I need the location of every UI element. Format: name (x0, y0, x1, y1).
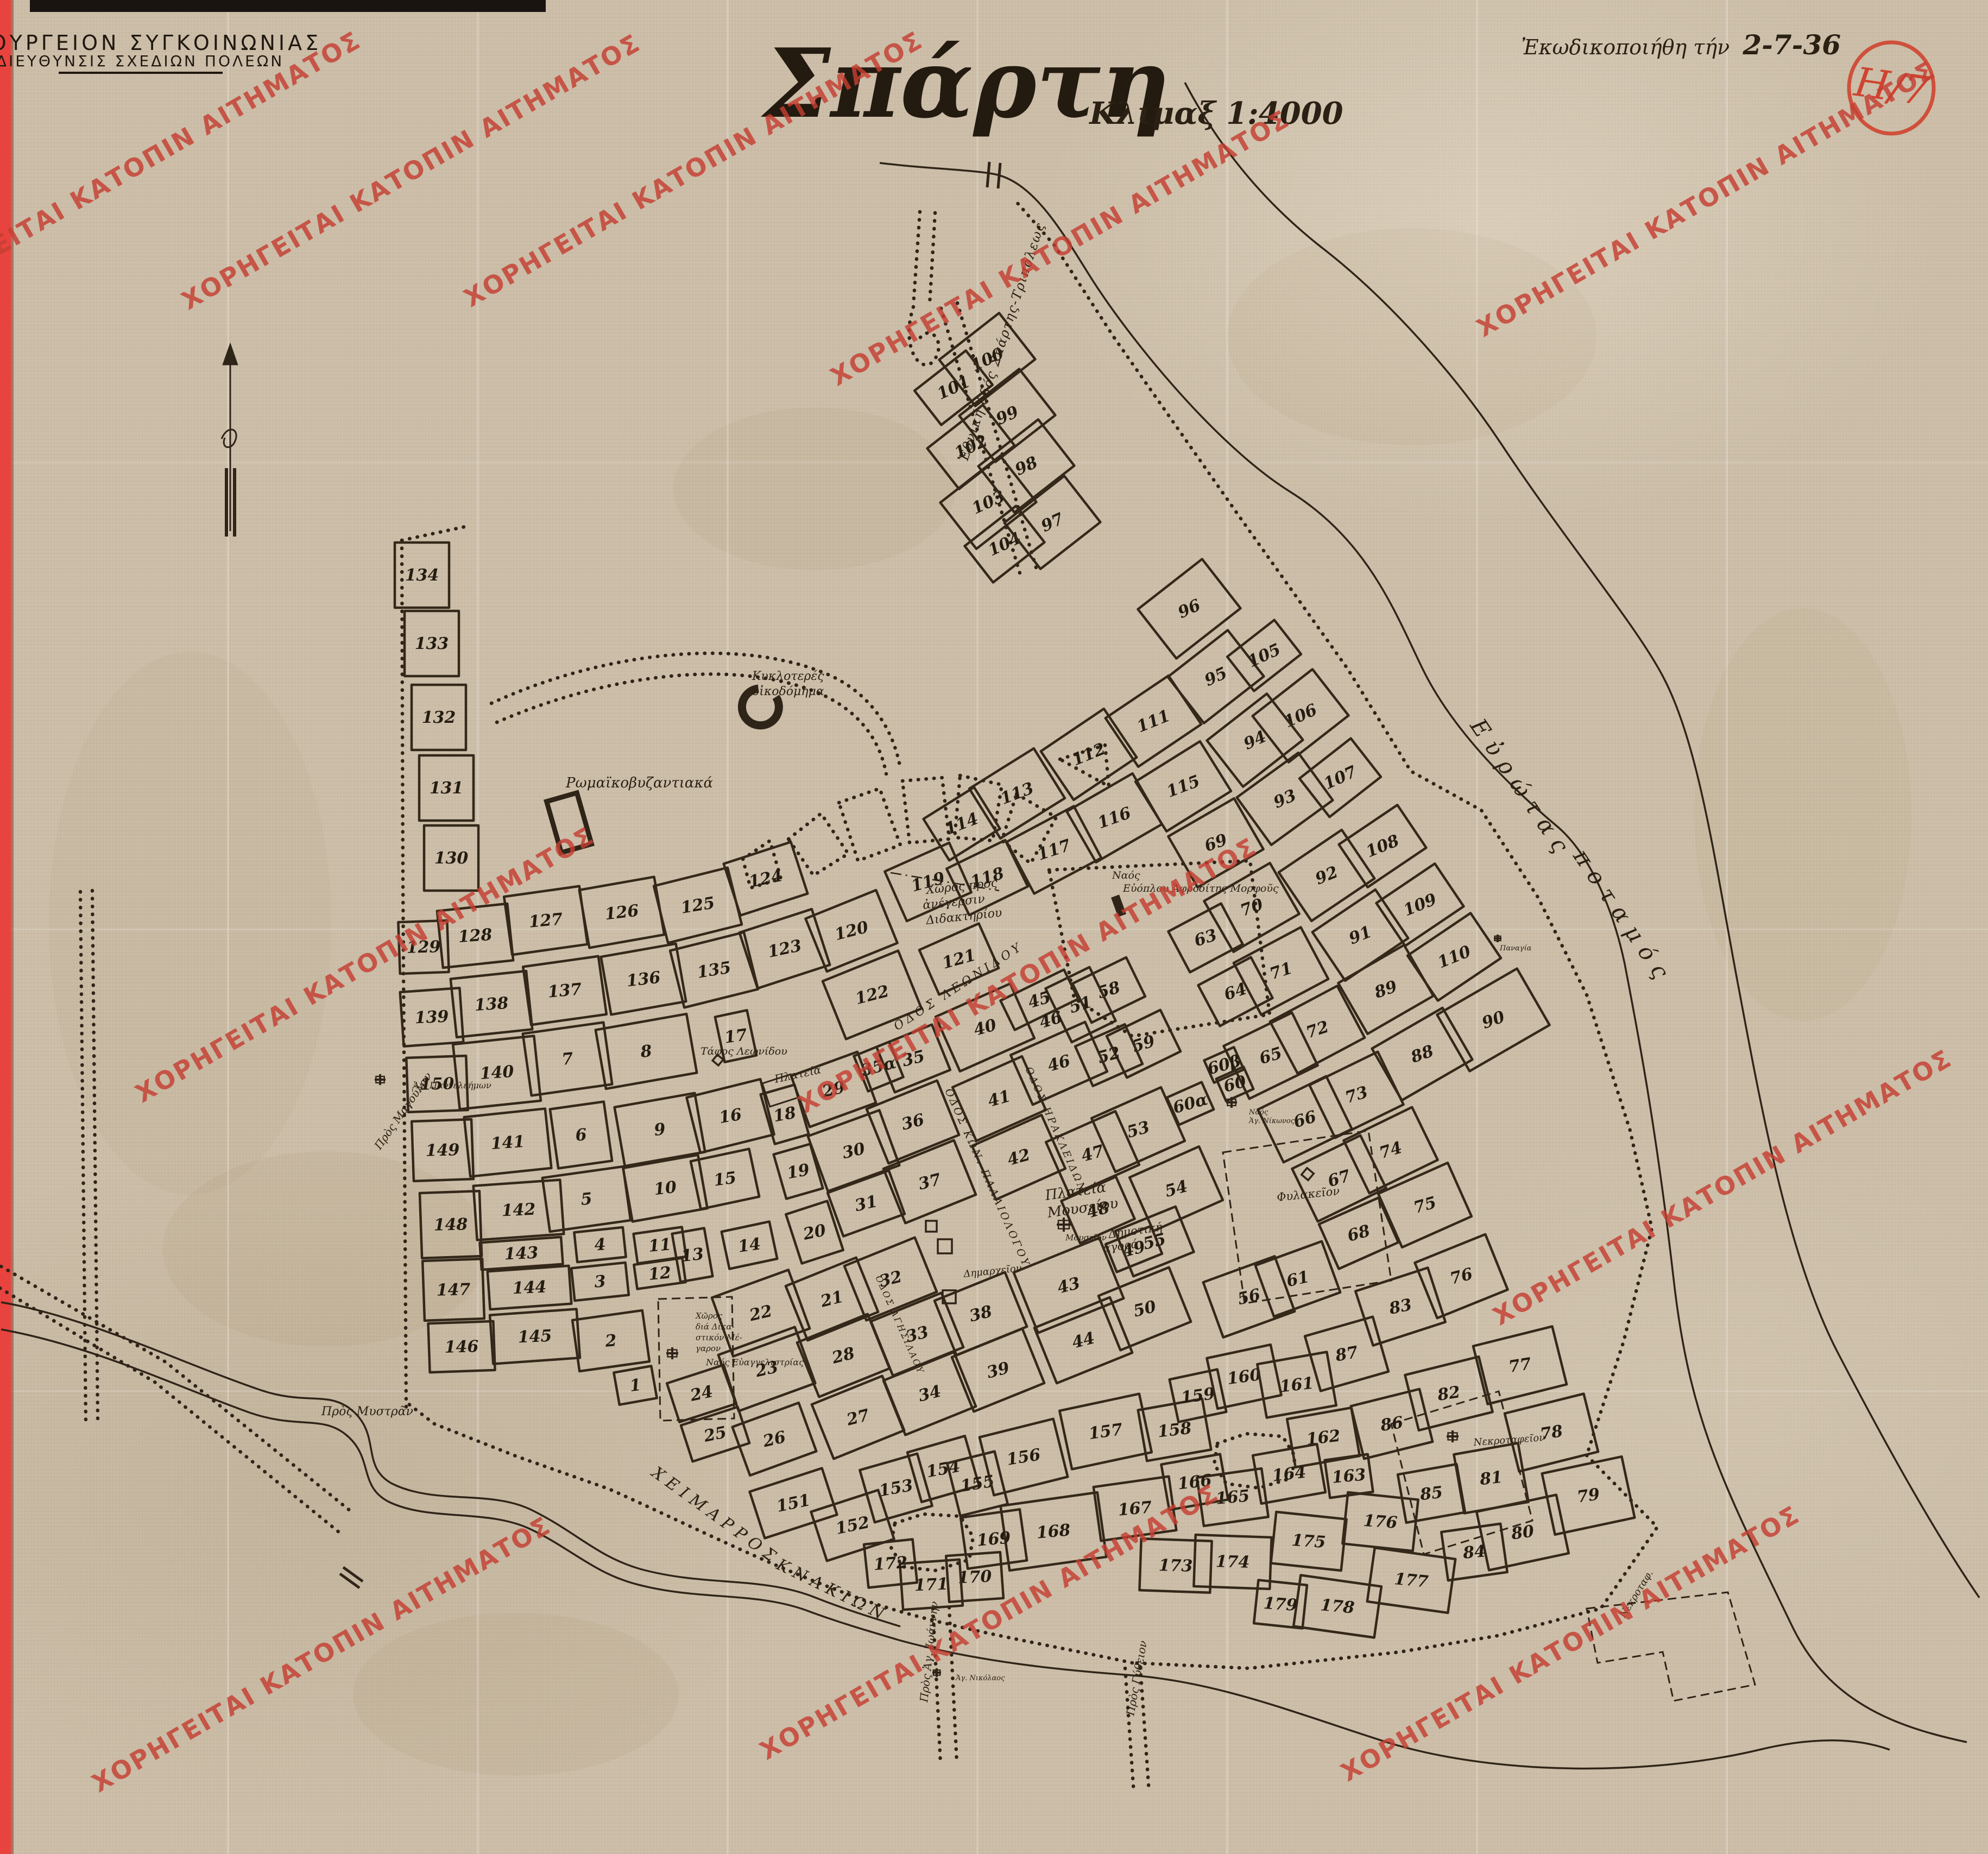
block-number: 50 (1132, 1297, 1158, 1321)
block-number: 41 (986, 1087, 1013, 1111)
block-number: 123 (766, 936, 803, 962)
block-number: 30 (841, 1139, 867, 1163)
block-number: 171 (914, 1575, 949, 1596)
block-number: 128 (458, 925, 493, 947)
city-block: 14 (722, 1221, 778, 1269)
city-block: 24 (667, 1365, 736, 1422)
block-number: 127 (528, 910, 564, 932)
watermark-text: ΧΟΡΗΓΕΙΤΑΙ ΚΑΤΟΠΙΝ ΑΙΤΗΜΑΤΟΣ (1336, 1499, 1805, 1787)
feature-label: Ἁγ. Νικόλαος (955, 1674, 1005, 1682)
block-number: 14 (737, 1234, 762, 1256)
block-number: 109 (1401, 890, 1440, 920)
block-number: 169 (976, 1528, 1012, 1550)
block-number: 107 (1321, 762, 1360, 793)
city-block: 105 (1227, 620, 1301, 691)
feature-label: Ἁγ. Νίκωνος (1248, 1117, 1295, 1125)
block-number: 79 (1576, 1485, 1601, 1506)
block-number: 45 (1026, 988, 1053, 1013)
block-number: 173 (1158, 1556, 1192, 1575)
block-number: 54 (1163, 1177, 1190, 1201)
city-block: 94 (1207, 693, 1303, 786)
city-block: 72 (1270, 986, 1365, 1073)
block-number: 71 (1267, 958, 1295, 983)
feature-label: στικόν Μέ- (696, 1333, 742, 1342)
city-block: 151 (750, 1468, 837, 1538)
block-number: 10 (653, 1178, 678, 1200)
city-block: 19 (774, 1144, 823, 1199)
block-number: 179 (1263, 1594, 1298, 1615)
town-hall-3 (926, 1221, 937, 1232)
city-block: 127 (504, 886, 588, 955)
block-number: 163 (1331, 1465, 1367, 1487)
block-number: 44 (1070, 1328, 1097, 1352)
block-number: 28 (830, 1344, 857, 1368)
map-canvas: ΥΠΟΥΡΓΕΙΟΝ ΣΥΓΚΟΙΝΩΝΙΑΣ ΔΙΕΥΘΥΝΣΙΣ ΣΧΕΔΙ… (0, 0, 1988, 1854)
city-block: 90 (1437, 969, 1549, 1071)
ministry-line2: ΔΙΕΥΘΥΝΣΙΣ ΣΧΕΔΙΩΝ ΠΟΛΕΩΝ (0, 52, 284, 70)
block-number: 104 (985, 528, 1024, 560)
block-number: 113 (998, 779, 1037, 809)
city-block: 131 (419, 755, 474, 821)
map-sheet: ΥΠΟΥΡΓΕΙΟΝ ΣΥΓΚΟΙΝΩΝΙΑΣ ΔΙΕΥΘΥΝΣΙΣ ΣΧΕΔΙ… (0, 0, 1988, 1854)
city-block: 110 (1408, 913, 1501, 1000)
block-number: 120 (832, 918, 870, 944)
block-number: 164 (1271, 1463, 1307, 1486)
block-number: 17 (723, 1025, 748, 1047)
svg-text:Ἐκωδικοποιήθη τήν 2-7-: Ἐκωδικοποιήθη τήν 2-7-36 (1521, 29, 1841, 61)
block-number: 177 (1393, 1569, 1429, 1592)
block-number: 151 (775, 1491, 812, 1516)
city-block: 4 (574, 1227, 626, 1262)
block-number: 82 (1436, 1383, 1462, 1405)
city-block: 107 (1299, 739, 1381, 817)
city-block: 34 (883, 1352, 976, 1435)
city-block: 13 (672, 1228, 713, 1282)
cemetery-cross (1447, 1430, 1459, 1442)
city-block: 144 (488, 1266, 572, 1309)
city-block: 6 (550, 1102, 612, 1169)
city-block: 74 (1343, 1107, 1437, 1193)
block-number: 68 (1345, 1221, 1372, 1246)
block-number: 149 (425, 1140, 460, 1160)
block-number: 130 (434, 849, 469, 868)
block-number: 81 (1478, 1468, 1503, 1490)
city-block: 25 (681, 1407, 749, 1462)
block-number: 97 (1038, 509, 1067, 536)
block-number: 16 (718, 1105, 743, 1127)
block-number: 46 (1045, 1051, 1072, 1076)
feature-label: οἰκοδόμημα (752, 685, 824, 698)
bridge-tick-a (987, 162, 989, 187)
block-number: 117 (1035, 836, 1074, 865)
evangelistria-cross (666, 1347, 678, 1359)
block-number: 83 (1387, 1295, 1413, 1319)
block-number: 27 (844, 1405, 872, 1430)
city-block: 133 (405, 611, 459, 676)
block-number: 157 (1088, 1420, 1124, 1443)
block-number: 168 (1036, 1521, 1071, 1543)
block-number: 73 (1343, 1083, 1370, 1108)
codified-label: Ἐκωδικοποιήθη τήν (1521, 35, 1730, 59)
block-number: 96 (1175, 596, 1204, 622)
red-edge-strip (0, 0, 11, 1854)
block-number: 139 (414, 1007, 449, 1028)
block-number: 121 (940, 945, 978, 973)
block-number: 5 (580, 1189, 593, 1209)
city-block: 73 (1309, 1052, 1403, 1138)
feature-label: Πρὸς Γύθειον (1124, 1639, 1150, 1717)
city-block: 111 (1106, 676, 1201, 767)
block-number: 134 (405, 566, 439, 585)
block-number: 56 (1236, 1285, 1263, 1309)
feature-label: ποταμός (1568, 843, 1679, 991)
city-block: 56 (1203, 1256, 1295, 1337)
block-number: 74 (1377, 1138, 1404, 1163)
city-block: 130 (424, 825, 478, 891)
block-number: 156 (1005, 1445, 1042, 1469)
city-block: 26 (733, 1403, 817, 1475)
city-block: 3 (571, 1263, 629, 1301)
block-number: 61 (1285, 1267, 1311, 1291)
block-number: 19 (785, 1160, 811, 1183)
red-edge-strip-shadow (11, 0, 14, 1854)
city-block: 59 (1107, 1010, 1181, 1078)
block-number: 85 (1418, 1483, 1443, 1505)
block-number: 176 (1363, 1511, 1398, 1533)
city-block: 126 (579, 877, 665, 948)
block-number: 15 (712, 1168, 737, 1190)
city-block: 38 (935, 1272, 1027, 1355)
block-number: 122 (853, 982, 891, 1008)
block-number: 158 (1157, 1419, 1192, 1442)
city-block: 136 (601, 944, 686, 1015)
city-block: 15 (691, 1149, 759, 1209)
block-number: 148 (433, 1215, 468, 1234)
block-number: 108 (1364, 831, 1402, 861)
block-number: 51 (1067, 993, 1094, 1018)
watermark-text: ΧΟΡΗΓΕΙΤΑΙ ΚΑΤΟΠΙΝ ΑΙΤΗΜΑΤΟΣ (459, 25, 928, 313)
city-block: 106 (1253, 669, 1349, 762)
block-number: 13 (680, 1245, 704, 1266)
block-number: 126 (604, 901, 640, 924)
ministry-header: ΥΠΟΥΡΓΕΙΟΝ ΣΥΓΚΟΙΝΩΝΙΑΣ ΔΙΕΥΘΥΝΣΙΣ ΣΧΕΔΙ… (0, 31, 321, 73)
feature-label: Παναγία (1499, 944, 1532, 953)
block-number: 87 (1333, 1342, 1359, 1365)
block-number: 170 (957, 1567, 992, 1588)
block-number: 84 (1462, 1542, 1487, 1563)
fan-wedge-3 (903, 778, 949, 843)
block-number: 153 (878, 1476, 914, 1501)
block-number: 111 (1134, 706, 1173, 736)
block-number: 90 (1480, 1007, 1507, 1033)
block-number: 95 (1202, 664, 1230, 690)
block-number: 34 (917, 1382, 943, 1405)
block-number: 42 (1005, 1145, 1032, 1170)
pantaleimon-cross (375, 1074, 386, 1085)
feature-label: Ναός (1112, 869, 1140, 881)
block-number: 39 (985, 1358, 1012, 1382)
block-number: 7 (561, 1049, 574, 1069)
watermark-text: ΧΟΡΗΓΕΙΤΑΙ ΚΑΤΟΠΙΝ ΑΙΤΗΜΑΤΟΣ (825, 104, 1295, 392)
city-block: 78 (1505, 1393, 1598, 1471)
block-number: 70 (1238, 895, 1266, 920)
feature-label: γαρον (696, 1344, 721, 1353)
block-number: 76 (1448, 1264, 1475, 1288)
block-number: 112 (1070, 739, 1108, 770)
city-block: 146 (428, 1321, 495, 1372)
block-number: 47 (1079, 1142, 1106, 1166)
block-number: 11 (648, 1235, 672, 1256)
block-number: 159 (1180, 1384, 1216, 1408)
block-number: 22 (747, 1302, 774, 1326)
block-number: 12 (648, 1263, 672, 1284)
block-number: 147 (436, 1280, 471, 1300)
watermark-text: ΧΟΡΗΓΕΙΤΑΙ ΚΑΤΟΠΙΝ ΑΙΤΗΜΑΤΟΣ (755, 1478, 1224, 1765)
block-number: 124 (747, 866, 784, 892)
city-block: 37 (883, 1140, 976, 1224)
block-number: 178 (1320, 1596, 1355, 1618)
city-block: 159 (1170, 1370, 1227, 1422)
city-block: 95 (1168, 630, 1264, 723)
block-number: 92 (1312, 862, 1341, 888)
city-block: 10 (623, 1155, 707, 1222)
block-number: 77 (1507, 1354, 1533, 1377)
feature-label: Κυκλοτερές (752, 670, 824, 683)
city-block: 39 (952, 1329, 1044, 1412)
block-number: 105 (1245, 640, 1284, 671)
city-block: 91 (1312, 890, 1408, 981)
feature-label: Εὐρώτας (1465, 713, 1579, 865)
block-number: 175 (1291, 1531, 1327, 1552)
fan-wedge-2 (839, 789, 900, 861)
city-block: 93 (1237, 753, 1333, 845)
block-number: 86 (1379, 1413, 1405, 1435)
north-entry-b (930, 213, 935, 304)
block-number: 152 (834, 1513, 871, 1538)
city-block: 169 (961, 1509, 1027, 1568)
block-number: 133 (415, 634, 449, 653)
feature-label: Τάφος Λεωνίδου (700, 1045, 787, 1057)
town-hall-1 (938, 1239, 952, 1253)
block-number: 75 (1411, 1193, 1438, 1218)
prison-mark (1302, 1168, 1314, 1181)
block-number: 136 (626, 968, 661, 991)
block-number: 72 (1304, 1017, 1331, 1042)
city-block: 177 (1367, 1548, 1455, 1613)
panagia-chapel (1494, 935, 1501, 942)
block-number: 132 (422, 708, 456, 727)
block-number: 21 (818, 1287, 845, 1311)
city-block: 86 (1351, 1389, 1432, 1459)
city-block: 50 (1099, 1267, 1191, 1351)
block-number: 65 (1257, 1044, 1284, 1069)
nw-curve-b (497, 674, 886, 774)
boundary-top-left-col (402, 526, 470, 540)
city-block: 112 (1041, 709, 1137, 800)
block-number: 36 (900, 1110, 926, 1134)
block-number: 26 (761, 1428, 788, 1452)
ministry-line1: ΥΠΟΥΡΓΕΙΟΝ ΣΥΓΚΟΙΝΩΝΙΑΣ (0, 31, 321, 55)
block-number: 145 (517, 1327, 552, 1347)
city-block: 68 (1319, 1197, 1398, 1269)
block-number: 43 (1056, 1273, 1082, 1297)
block-number: 125 (679, 893, 716, 917)
block-number: 9 (653, 1120, 667, 1140)
city-block: 75 (1378, 1163, 1472, 1247)
block-number: 91 (1346, 922, 1374, 948)
block-number: 93 (1271, 786, 1299, 812)
block-number: 115 (1164, 772, 1203, 802)
feature-label: ΟΔΟΣ ΚΩΝ. ΠΑΛΑΙΟΛΟΓΟΥ (942, 1087, 1032, 1269)
block-number: 3 (594, 1272, 606, 1291)
block-number: 138 (474, 994, 509, 1015)
block-number: 31 (853, 1192, 880, 1215)
feature-label: Ρωμαϊκοβυζαντιακά (565, 775, 714, 791)
block-number: 2 (604, 1331, 617, 1351)
north-arrow (222, 343, 238, 537)
block-number: 4 (594, 1235, 606, 1254)
codified-date: 2-7-36 (1742, 29, 1841, 61)
city-block: 96 (1138, 559, 1240, 659)
city-block: 137 (523, 956, 607, 1025)
block-number: 116 (1095, 803, 1134, 833)
feature-label: Μουσεῖον (1065, 1233, 1107, 1243)
city-block: 61 (1255, 1241, 1340, 1316)
city-block: 109 (1377, 863, 1464, 945)
feature-label: Ναός Εὐαγγελιστρίας (705, 1357, 804, 1367)
city-block: 52 (1075, 1024, 1143, 1086)
block-number: 20 (801, 1221, 828, 1244)
block-number: 144 (512, 1278, 547, 1298)
city-block: 161 (1257, 1352, 1336, 1417)
city-block: 27 (812, 1376, 904, 1459)
nw-curve-a (491, 653, 900, 768)
city-block: 2 (572, 1310, 649, 1371)
watermark-text: ΧΟΡΗΓΕΙΤΑΙ ΚΑΤΟΠΙΝ ΑΙΤΗΜΑΤΟΣ (1472, 55, 1941, 343)
codification-note: Ἐκωδικοποιήθη τήν 2-7-36 (1521, 29, 1841, 61)
feature-label: Ναός (1248, 1108, 1268, 1117)
block-number: 37 (917, 1170, 943, 1194)
block-number: 38 (968, 1302, 994, 1326)
block-number: 146 (444, 1337, 479, 1357)
block-number: 24 (688, 1382, 715, 1405)
block-number: 161 (1279, 1374, 1315, 1397)
city-block: 84 (1441, 1524, 1507, 1580)
city-block: 81 (1454, 1443, 1528, 1513)
city-block: 1 (614, 1366, 657, 1404)
block-number: 53 (1125, 1118, 1152, 1142)
top-black-bar (30, 0, 546, 12)
city-block: 123 (740, 909, 830, 988)
city-block: 71 (1234, 927, 1328, 1014)
feature-label: διά Δικα- (696, 1322, 735, 1332)
st-nikon-cross (1226, 1097, 1237, 1108)
city-block: 97 (1005, 476, 1101, 569)
block-number: 174 (1215, 1552, 1249, 1572)
north-entry-a (913, 212, 920, 305)
block-number: 46 (1037, 1008, 1064, 1033)
block-number: 114 (943, 809, 981, 839)
city-block: 135 (670, 932, 758, 1008)
city-block: 164 (1253, 1444, 1326, 1503)
block-number: 89 (1372, 977, 1400, 1002)
block-number: 66 (1291, 1107, 1318, 1132)
watermark-text: ΧΟΡΗΓΕΙΤΑΙ ΚΑΤΟΠΙΝ ΑΙΤΗΜΑΤΟΣ (1488, 1043, 1957, 1331)
city-block: 134 (395, 543, 449, 608)
block-number: 142 (501, 1200, 536, 1221)
block-number: 80 (1510, 1522, 1535, 1543)
block-number: 172 (873, 1553, 908, 1574)
city-block: 132 (412, 685, 466, 750)
city-block: 157 (1059, 1394, 1152, 1470)
city-block: 143 (479, 1237, 563, 1270)
block-number: 18 (772, 1103, 798, 1126)
block-number: 143 (504, 1244, 539, 1264)
block-number: 131 (430, 779, 464, 798)
block-number: 1 (629, 1376, 642, 1396)
city-block: 31 (828, 1171, 905, 1237)
city-block: 63 (1168, 904, 1242, 973)
city-block: 175 (1271, 1512, 1346, 1571)
block-number: 88 (1408, 1042, 1436, 1067)
block-number: 6 (575, 1125, 588, 1145)
city-block: 5 (542, 1166, 630, 1232)
block-number: 110 (1435, 942, 1474, 972)
block-number: 137 (547, 980, 583, 1002)
city-block: 152 (811, 1490, 894, 1561)
block-number: 106 (1281, 700, 1320, 731)
city-block: 162 (1287, 1408, 1360, 1467)
feature-label: Χῶρος (695, 1311, 723, 1321)
feature-label: Πρὸς Μυστρᾶν (321, 1405, 413, 1418)
city-block: 173 (1139, 1538, 1211, 1592)
city-block: 145 (490, 1309, 580, 1364)
block-number: 141 (490, 1132, 526, 1153)
watermark-text: ΧΟΡΗΓΕΙΤΑΙ ΚΑΤΟΠΙΝ ΑΙΤΗΜΑΤΟΣ (176, 28, 646, 316)
block-number: 8 (639, 1042, 653, 1062)
city-block: 153 (860, 1454, 932, 1522)
bridge-tick-b (998, 163, 1000, 188)
map-scale: Κλιμαξ 1:4000 (1088, 96, 1343, 131)
block-number: 25 (702, 1423, 728, 1446)
